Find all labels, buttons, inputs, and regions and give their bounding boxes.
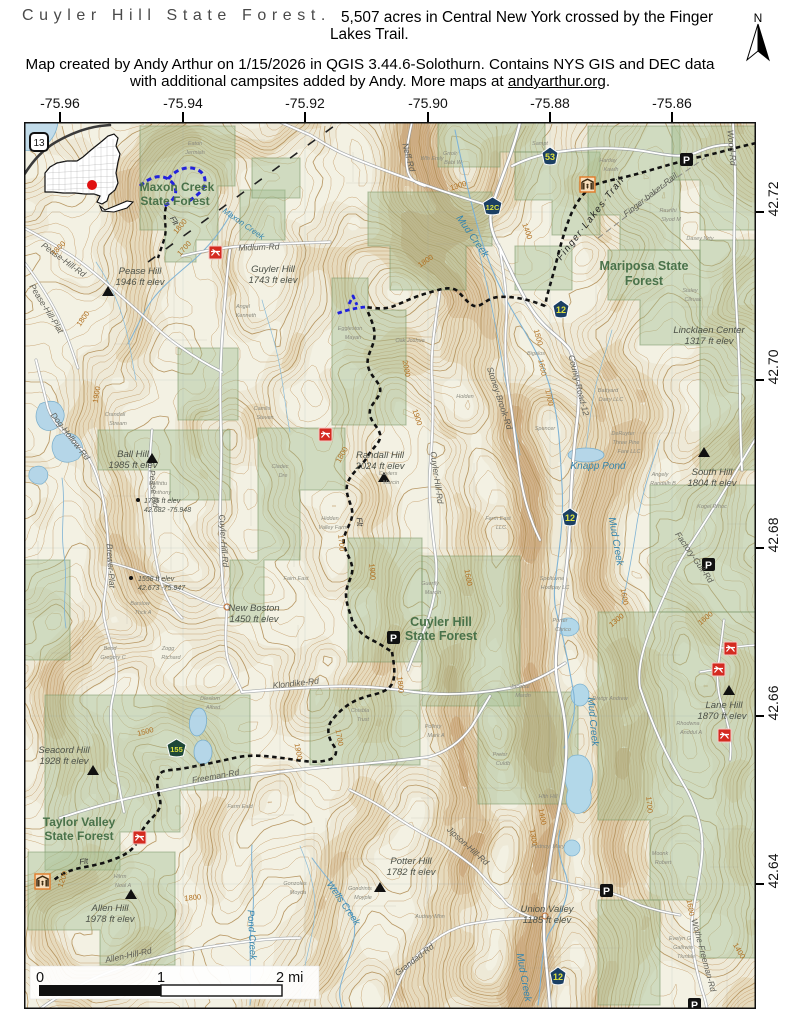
- svg-text:Zogg: Zogg: [161, 646, 175, 652]
- svg-text:Gondrints: Gondrints: [348, 886, 372, 892]
- svg-text:Rtchard: Rtchard: [161, 655, 181, 661]
- svg-text:Dasey Nrty: Dasey Nrty: [686, 236, 714, 242]
- svg-text:1450 ft elev: 1450 ft elev: [229, 614, 279, 625]
- svg-text:1700: 1700: [336, 534, 346, 551]
- svg-text:Trust: Trust: [357, 717, 370, 723]
- svg-text:1782 ft elev: 1782 ft elev: [386, 867, 436, 878]
- svg-text:42.673 -75.947: 42.673 -75.947: [138, 585, 186, 592]
- svg-text:Marcln: Marcln: [425, 590, 442, 596]
- svg-text:Pollnty: Pollnty: [425, 724, 443, 730]
- svg-text:Wlh Emly: Wlh Emly: [420, 156, 444, 162]
- svg-text:Moonk: Moonk: [652, 851, 669, 857]
- svg-text:1800: 1800: [395, 676, 405, 693]
- svg-text:Farm East: Farm East: [485, 516, 511, 522]
- svg-text:Fare LLC: Fare LLC: [618, 449, 641, 455]
- svg-text:Union Valley: Union Valley: [521, 904, 575, 915]
- svg-text:42.682 -75.948: 42.682 -75.948: [144, 507, 191, 514]
- svg-text:Rhodwna: Rhodwna: [676, 721, 699, 727]
- svg-text:Lincklaen Center: Lincklaen Center: [673, 325, 745, 336]
- svg-text:Dleslom: Dleslom: [200, 696, 220, 702]
- svg-text:Cuyler Hill: Cuyler Hill: [410, 615, 472, 629]
- svg-text:Eggleston: Eggleston: [338, 326, 362, 332]
- svg-text:Staley: Staley: [682, 288, 699, 294]
- svg-text:State Forest: State Forest: [44, 829, 113, 843]
- svg-text:Dairy LLC: Dairy LLC: [599, 397, 623, 403]
- svg-text:Knapp Pond: Knapp Pond: [570, 461, 625, 472]
- svg-text:Gonzoles: Gonzoles: [283, 881, 306, 887]
- svg-text:Oak Joshua: Oak Joshua: [395, 338, 424, 344]
- svg-text:Gallrwin: Gallrwin: [673, 945, 693, 951]
- svg-text:LLC: LLC: [496, 525, 506, 531]
- svg-text:Guertly: Guertly: [421, 581, 440, 587]
- svg-text:12: 12: [553, 972, 563, 982]
- svg-text:Hidden: Hidden: [321, 516, 338, 522]
- svg-text:Cuylers: Cuylers: [379, 471, 398, 477]
- svg-text:Allen Hill: Allen Hill: [91, 903, 130, 914]
- svg-text:State Forest: State Forest: [405, 629, 478, 643]
- svg-text:Ravrlhi: Ravrlhi: [659, 208, 677, 214]
- svg-text:1800: 1800: [184, 892, 201, 902]
- svg-text:Dre: Dre: [279, 473, 288, 479]
- svg-text:Cllruak: Cllruak: [684, 297, 701, 303]
- svg-text:Grrolr: Grrolr: [443, 151, 458, 157]
- svg-text:Camlis: Camlis: [254, 406, 271, 412]
- svg-text:53: 53: [545, 152, 555, 162]
- svg-text:Jermiah: Jermiah: [184, 150, 205, 156]
- svg-text:Porter: Porter: [553, 618, 569, 624]
- svg-text:P: P: [390, 633, 397, 645]
- svg-text:Thck A: Thck A: [135, 610, 152, 616]
- svg-text:12: 12: [565, 513, 575, 523]
- svg-text:Pudnoy, Mary: Pudnoy, Mary: [531, 844, 566, 850]
- svg-text:Maxon Creek: Maxon Creek: [140, 180, 215, 194]
- svg-text:Midlum-Rd: Midlum-Rd: [238, 241, 280, 252]
- svg-text:Hartlay: Hartlay: [599, 158, 618, 164]
- svg-text:Diwtgr Andrew: Diwtgr Andrew: [592, 696, 629, 702]
- svg-text:1870 ft elev: 1870 ft elev: [697, 711, 747, 722]
- svg-text:Lane Hill: Lane Hill: [706, 700, 744, 711]
- svg-text:1185 ft elev: 1185 ft elev: [523, 915, 573, 926]
- svg-text:1: 1: [157, 970, 165, 986]
- svg-text:Tlunble: Tlunble: [677, 954, 695, 960]
- svg-text:155: 155: [170, 745, 183, 754]
- svg-text:Valley Farm: Valley Farm: [318, 525, 348, 531]
- svg-text:1700: 1700: [644, 796, 654, 813]
- svg-text:1928 ft elev: 1928 ft elev: [39, 756, 89, 767]
- svg-text:Audrey Mhn: Audrey Mhn: [414, 914, 445, 920]
- svg-text:1946 ft elev: 1946 ft elev: [115, 277, 165, 288]
- svg-text:12: 12: [556, 305, 566, 315]
- svg-text:Spencer: Spencer: [535, 426, 557, 432]
- svg-text:Taylor Valley: Taylor Valley: [43, 815, 116, 829]
- svg-text:DeRuyter: DeRuyter: [611, 431, 635, 437]
- svg-text:Anddul A: Anddul A: [679, 730, 702, 736]
- svg-text:Flt: Flt: [355, 517, 365, 527]
- svg-text:State Forest: State Forest: [140, 194, 209, 208]
- svg-text:Three Pine: Three Pine: [613, 440, 640, 446]
- svg-text:Kogel Whoc: Kogel Whoc: [697, 504, 727, 510]
- svg-text:Moyda: Moyda: [290, 890, 307, 896]
- svg-text:Jacobul: Jacobul: [510, 684, 531, 690]
- svg-text:Potter Hill: Potter Hill: [390, 856, 432, 867]
- svg-text:Pollhttu: Pollhttu: [149, 481, 167, 487]
- svg-text:Evelyn G: Evelyn G: [669, 936, 692, 942]
- svg-text:Moyple: Moyple: [354, 895, 372, 901]
- svg-text:Hilrm: Hilrm: [114, 874, 127, 880]
- svg-text:Angely: Angely: [651, 472, 670, 478]
- svg-text:Crandall: Crandall: [105, 412, 126, 418]
- svg-text:Randalh B: Randalh B: [650, 481, 676, 487]
- svg-text:1558 ft elev: 1558 ft elev: [138, 576, 175, 583]
- svg-text:Chrico: Chrico: [555, 627, 571, 633]
- svg-text:Holden: Holden: [456, 394, 473, 400]
- svg-text:Pretsr: Pretsr: [493, 752, 509, 758]
- svg-text:Stream: Stream: [109, 421, 127, 427]
- svg-text:Kawlh: Kawlh: [604, 167, 619, 173]
- svg-text:Slyod M: Slyod M: [661, 217, 681, 223]
- svg-text:P: P: [603, 886, 610, 898]
- svg-text:Marcin: Marcin: [383, 480, 400, 486]
- svg-text:Eaton: Eaton: [188, 141, 202, 147]
- svg-text:2 mi: 2 mi: [276, 970, 303, 986]
- svg-text:Alfred: Alfred: [205, 705, 221, 711]
- svg-text:Pease Hill: Pease Hill: [119, 266, 163, 277]
- svg-text:Bigalos: Bigalos: [527, 351, 545, 357]
- svg-text:Anthony: Anthony: [150, 490, 172, 496]
- svg-text:P: P: [683, 155, 690, 167]
- svg-text:Mark A: Mark A: [427, 733, 445, 739]
- svg-text:1804 ft elev: 1804 ft elev: [687, 478, 737, 489]
- svg-text:Babi W: Babi W: [444, 160, 463, 166]
- svg-text:Guyler Hill: Guyler Hill: [251, 264, 296, 275]
- svg-text:Steven: Steven: [256, 415, 273, 421]
- svg-text:Sampt: Sampt: [532, 141, 548, 147]
- svg-text:Battyard: Battyard: [598, 388, 619, 394]
- svg-text:Farm Eald: Farm Eald: [227, 804, 253, 810]
- svg-text:0: 0: [36, 970, 44, 986]
- svg-text:Angel: Angel: [235, 304, 251, 310]
- svg-text:Seacord Hill: Seacord Hill: [38, 745, 90, 756]
- svg-text:12C: 12C: [486, 203, 500, 212]
- svg-text:South Hill: South Hill: [692, 467, 734, 478]
- svg-text:Mayah: Mayah: [345, 335, 362, 341]
- svg-text:1317 ft elev: 1317 ft elev: [684, 336, 734, 347]
- svg-text:Noal A: Noal A: [115, 883, 132, 889]
- svg-text:Fairn East: Fairn East: [283, 576, 309, 582]
- svg-text:1795 ft elev: 1795 ft elev: [144, 498, 181, 505]
- svg-text:New Boston: New Boston: [228, 603, 279, 614]
- svg-text:1743 ft elev: 1743 ft elev: [248, 275, 298, 286]
- svg-text:N: N: [754, 11, 763, 25]
- svg-text:Mardn: Mardn: [515, 693, 531, 699]
- svg-text:Barslow: Barslow: [130, 601, 151, 607]
- svg-text:Randall Hill: Randall Hill: [356, 450, 405, 461]
- svg-text:Forest: Forest: [625, 274, 664, 288]
- svg-text:Ball Hill: Ball Hill: [117, 449, 150, 460]
- svg-text:Chisbla: Chisbla: [351, 708, 369, 714]
- svg-text:1900: 1900: [367, 563, 377, 580]
- svg-text:Gregory C: Gregory C: [100, 655, 125, 661]
- svg-text:Bend: Bend: [104, 646, 118, 652]
- svg-text:13: 13: [33, 138, 45, 149]
- svg-text:Hlth Hill: Hlth Hill: [539, 794, 559, 800]
- svg-text:Robert: Robert: [655, 860, 672, 866]
- svg-text:Cladec: Cladec: [271, 464, 288, 470]
- svg-text:Mariposa State: Mariposa State: [600, 259, 689, 273]
- svg-text:Kenneth: Kenneth: [236, 313, 257, 319]
- svg-text:Culdb: Culdb: [496, 761, 510, 767]
- svg-text:Spoltuvne: Spoltuvne: [540, 576, 564, 582]
- svg-text:1978 ft elev: 1978 ft elev: [85, 914, 135, 925]
- svg-text:Hodlpay LC: Hodlpay LC: [541, 585, 570, 591]
